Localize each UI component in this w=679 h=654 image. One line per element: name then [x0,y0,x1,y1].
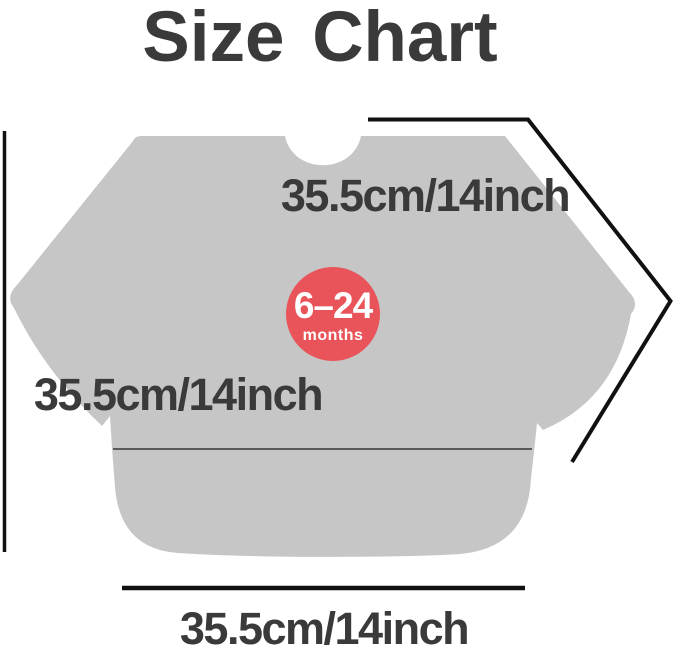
sleeve-length-label: 35.5cm/14inch [281,173,569,218]
badge-age-unit: months [303,328,364,344]
age-range-badge: 6–24 months [286,267,380,361]
garment-height-label: 35.5cm/14inch [34,372,322,417]
badge-age-range: 6–24 [294,287,372,324]
size-chart-title: Size Chart [142,2,497,73]
garment-width-label: 35.5cm/14inch [180,606,468,651]
size-chart-page: Size Chart 35.5cm/14inch 35.5cm/14inch 3… [0,0,679,654]
